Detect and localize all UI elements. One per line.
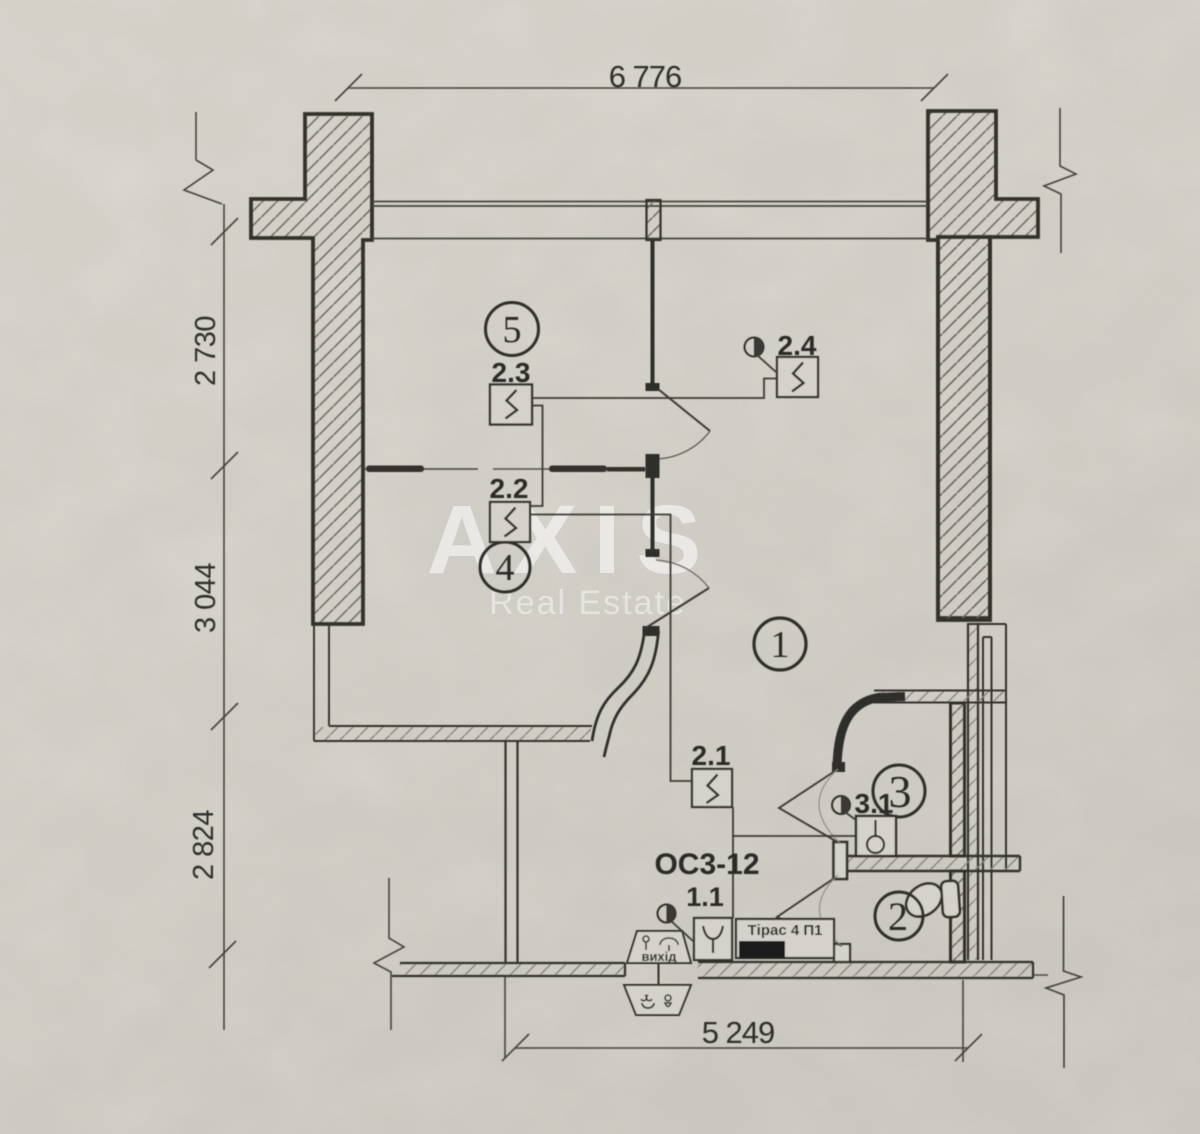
svg-text:2.1: 2.1 bbox=[692, 740, 731, 771]
svg-text:1.1: 1.1 bbox=[686, 882, 724, 912]
svg-text:1: 1 bbox=[771, 624, 790, 666]
svg-text:3 044: 3 044 bbox=[190, 563, 222, 633]
svg-text:2.2: 2.2 bbox=[490, 473, 529, 504]
svg-text:6 776: 6 776 bbox=[609, 59, 682, 94]
svg-text:2.3: 2.3 bbox=[492, 357, 531, 388]
svg-text:2.4: 2.4 bbox=[778, 330, 817, 361]
svg-text:3.1: 3.1 bbox=[855, 788, 894, 819]
svg-text:2 730: 2 730 bbox=[190, 316, 222, 386]
svg-text:вихід: вихід bbox=[641, 949, 677, 964]
svg-text:2 824: 2 824 bbox=[188, 810, 220, 880]
svg-text:4: 4 bbox=[496, 547, 515, 589]
svg-text:2: 2 bbox=[888, 894, 908, 939]
svg-text:Тірас 4 П1: Тірас 4 П1 bbox=[748, 922, 823, 939]
svg-text:5: 5 bbox=[503, 309, 522, 351]
svg-text:5 249: 5 249 bbox=[702, 1015, 775, 1050]
svg-text:AXIS: AXIS bbox=[427, 485, 717, 594]
svg-text:ОС3-12: ОС3-12 bbox=[654, 848, 759, 881]
svg-text:Real Estate: Real Estate bbox=[489, 584, 687, 622]
